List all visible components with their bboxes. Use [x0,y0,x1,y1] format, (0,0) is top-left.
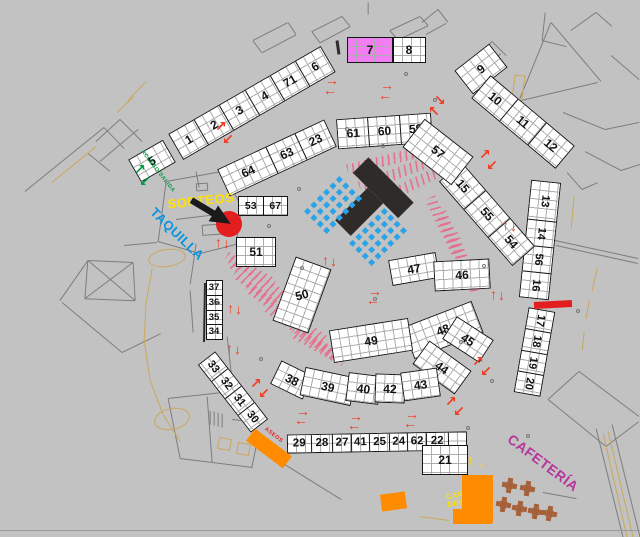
stall-number: 53 [239,197,263,215]
wall-segment [602,434,627,537]
chair-dot [317,221,324,228]
stall-number: 25 [370,433,389,450]
wall-segment [88,260,133,263]
wall-segment [132,263,135,301]
stall-number: 49 [330,319,412,362]
table-part [500,508,506,513]
stall-cell-45: 45 [444,317,493,361]
post-marker [466,426,470,430]
wall-segment [367,3,368,15]
stall-cell-43: 43 [401,368,439,400]
chair-dot [368,259,375,266]
wall-segment [437,9,448,23]
table-part [532,515,538,520]
chair-dot [355,233,362,240]
direction-arrow: ↑ [502,218,509,232]
chair-dot [381,233,388,240]
wall-segment [567,172,583,190]
stall-cell-20: 20 [514,370,542,395]
post-marker [433,98,437,102]
direction-arrow: ↙ [222,132,234,146]
stall-51: 51 [236,237,276,267]
stall-cell-21: 21 [423,446,467,474]
chair-dot [304,208,311,215]
stall-number: 67 [264,197,288,215]
row-stalls-53-67: 5367 [238,196,288,216]
stall-cell-29: 29 [288,435,311,452]
direction-arrow: ↑ [322,253,329,267]
stall-cell-37: 37 [207,281,222,295]
chair-dot [323,227,330,234]
chair-dot [387,240,394,247]
table-part [548,506,554,511]
wall-segment [596,12,613,27]
wall-segment [611,55,640,80]
wall-segment [582,182,599,190]
stall-cell-34: 34 [207,324,222,339]
post-marker [373,297,377,301]
wall-segment [84,261,88,299]
wall-segment [336,40,341,54]
chair-dot [323,189,330,196]
market-floor-plan: 1234716564632361605978910111213145616171… [0,0,640,537]
chair-dot [317,195,324,202]
table-part [531,487,536,493]
direction-arrow: ↑ [215,235,222,249]
wall-segment [189,291,193,333]
stall-number: 45 [444,317,493,361]
round-table-outline [147,246,187,269]
wall-segment [253,22,289,41]
chair-dot [323,214,330,221]
stall-number: 34 [207,325,222,339]
direction-arrow: ↓ [478,455,485,469]
post-marker [381,144,385,148]
stall-number: 24 [390,433,408,450]
wall-segment [555,240,638,259]
stall-number: 8 [394,38,425,62]
wall-segment [206,397,212,463]
wall-segment [311,31,320,43]
direction-arrow: ↖ [428,104,440,118]
direction-arrow: ← [347,418,361,432]
table-part [496,501,501,507]
cafeteria-table-icon [519,480,536,497]
stall-cell-51: 51 [237,238,275,266]
wall-segment [585,151,622,171]
wall-segment [551,22,602,82]
red-bar [534,300,572,309]
chair-dot [329,221,336,228]
direction-arrow: ← [403,416,417,430]
chair-dot [310,214,317,221]
table-part [513,484,518,490]
wall-segment [62,302,123,353]
wall-segment [621,164,640,171]
wall-segment [420,516,449,521]
wall-segment [570,197,574,229]
chair-dot [342,195,349,202]
stall-cell-61: 61 [337,118,369,148]
chair-dot [336,189,343,196]
chair-dot [355,246,362,253]
direction-arrow: ↓ [234,342,241,356]
wall-segment [548,371,580,400]
direction-arrow: ↑ [227,301,234,315]
chair-dot [362,227,369,234]
stall-number: 61 [337,118,369,148]
wall-segment [217,413,218,427]
wall-segment [252,40,262,53]
stall-number: 13 [524,185,564,217]
stall-number: 16 [521,270,549,300]
col-stalls-37-36-35-34: 37363534 [206,280,223,340]
wall-segment [542,40,566,47]
post-marker [490,379,494,383]
chair-dot [362,240,369,247]
chair-dot [336,176,343,183]
stall-cell-35: 35 [207,310,222,325]
cafeteria-table-icon [511,500,528,517]
post-marker [297,187,301,191]
outline-rect [236,442,251,456]
direction-arrow: ↙ [480,364,492,378]
wall-segment [390,16,421,31]
row-stalls-64-63-23: 646323 [217,119,337,196]
post-marker [576,309,580,313]
stall-number: 35 [207,311,222,325]
table-part [506,489,512,494]
stall-number: 21 [423,446,467,474]
wall-segment [143,341,150,381]
wall-segment [209,411,210,425]
chair-dot [394,221,401,228]
table-part [523,507,528,513]
table-part [542,510,547,516]
stall-cell-27: 27 [332,434,351,451]
chair-dot [329,182,336,189]
stall-cell-28: 28 [310,434,332,451]
direction-arrow: ↑ [226,341,233,355]
post-marker [267,224,271,228]
table-part [520,485,525,491]
direction-arrow: ↑ [490,287,497,301]
wall-segment [124,242,157,246]
outline-rect [196,183,209,192]
wall-segment [149,380,163,414]
chair-dot [368,246,375,253]
chair-dot [323,201,330,208]
stall-number: 41 [352,434,370,451]
stall-cell-13: 13 [528,181,560,221]
table-part [512,505,517,511]
wall-segment [85,298,135,301]
chair-dot [317,208,324,215]
post-marker [345,127,349,131]
wall-segment [262,34,297,53]
stall-number: 37 [207,281,222,295]
stall-cell-8: 8 [394,38,425,62]
wall-segment [122,333,162,353]
stall-cell-24: 24 [389,433,408,450]
wall-segment [117,96,135,113]
wall-segment [221,414,222,428]
post-marker [300,266,304,270]
chair-dot [381,246,388,253]
chair-dot [400,227,407,234]
wall-segment [145,269,152,303]
chair-dot [368,233,375,240]
stall-47: 47 [388,252,440,286]
wall-segment [312,16,343,32]
chair-dot [374,240,381,247]
table-part [518,501,524,506]
direction-arrow: ↙ [453,404,465,418]
stall-21: 21 [422,445,468,475]
direction-arrow: ← [378,88,392,102]
stall-cell-47: 47 [389,253,438,285]
stall-7: 7 [347,37,393,63]
wall-segment [422,9,439,23]
cafeteria-table-icon [501,477,518,494]
table-part [528,508,533,514]
stall-cell-60: 60 [367,116,400,146]
chair-dot [374,253,381,260]
chair-dot [362,253,369,260]
carga-descarga-block-lower [453,509,492,524]
wall-segment [607,431,633,537]
wall-segment [120,119,143,142]
wall-segment [180,458,252,468]
table-part [507,503,512,509]
cafeteria-table-icon [495,496,512,513]
stall-number: 7 [348,38,392,62]
stall-cell-25: 25 [369,433,389,450]
stall-43: 43 [400,367,441,401]
table-part [502,482,507,488]
stall-number: 47 [389,253,438,285]
outline-rect [217,437,232,451]
table-part [553,512,558,518]
table-part [526,481,532,486]
post-marker [526,434,530,438]
stall-number: 60 [368,116,400,146]
direction-arrow: ↓ [330,254,337,268]
direction-arrow: ↑ [467,453,474,467]
wall-segment [213,412,214,426]
stall-cell-49: 49 [330,319,412,362]
stall-number: 29 [288,435,311,452]
table-part [502,497,508,502]
stall-number: 28 [311,434,332,451]
chair-dot [336,201,343,208]
wall-segment [143,303,146,341]
chair-dot [387,227,394,234]
wall-segment [605,122,639,130]
direction-arrow: ↓ [498,288,505,302]
stall-cell-53: 53 [239,197,263,215]
chair-dot [349,240,356,247]
stall-number: 51 [237,238,275,266]
direction-arrow: ← [323,83,337,97]
chair-dot [374,227,381,234]
round-table-outline [152,404,192,433]
chair-dot [329,208,336,215]
chair-dot [329,195,336,202]
stall-cell-67: 67 [263,197,288,215]
post-marker [459,340,463,344]
wall-segment [563,112,605,130]
stall-8: 8 [393,37,426,63]
table-part [546,517,552,522]
post-marker [259,357,263,361]
direction-arrow: ↓ [223,236,230,250]
wall-segment [517,82,598,102]
table-part [524,492,530,497]
table-part [508,478,514,483]
direction-arrow: ↙ [486,158,498,172]
direction-arrow: ↓ [510,219,517,233]
cafeteria-table-icon [541,505,558,522]
wall-segment [585,301,589,319]
wall-segment [280,461,342,500]
chair-dot [381,221,388,228]
chair-dot [374,214,381,221]
chair-dot [368,221,375,228]
post-marker [216,301,220,305]
direction-arrow: ↓ [235,302,242,316]
col-stalls-17-18-19-20: 17181920 [513,307,555,396]
chair-dot [394,233,401,240]
wall-segment [581,332,584,351]
stall-cell-41: 41 [351,434,370,451]
stall-number: 27 [333,434,351,451]
orange-block-small [379,491,406,511]
post-marker [482,264,486,268]
stall-number: 20 [516,369,540,397]
wall-segment [519,22,551,98]
wall-segment [25,127,105,192]
stall-49: 49 [329,317,413,362]
post-marker [404,72,408,76]
wall-segment [0,530,640,531]
wall-segment [591,269,597,291]
stall-number: 43 [401,368,439,400]
direction-arrow: ← [294,413,308,427]
direction-arrow: ↙ [139,174,151,188]
wall-segment [611,424,640,537]
wall-segment [579,371,640,417]
wall-segment [571,12,597,31]
direction-arrow: ↙ [258,386,270,400]
table-part [516,512,522,517]
stall-cell-7: 7 [348,38,392,62]
table-part [534,504,540,509]
wall-segment [166,171,222,182]
stall-cell-16: 16 [520,270,551,299]
chair-dot [310,201,317,208]
